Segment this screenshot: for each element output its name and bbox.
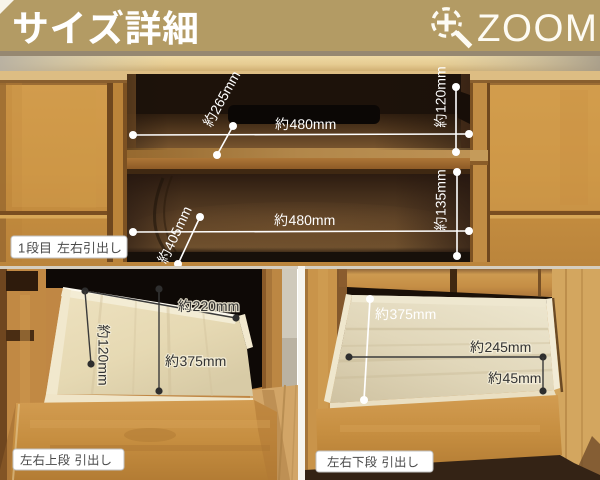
svg-text:120mm: 120mm (432, 66, 448, 113)
svg-text:480mm: 480mm (289, 212, 336, 228)
svg-text:375mm: 375mm (390, 306, 437, 322)
svg-text:120mm: 120mm (96, 339, 112, 386)
svg-text:1: 1 (18, 241, 25, 256)
svg-text:245mm: 245mm (485, 339, 532, 355)
svg-text:ZOOM: ZOOM (477, 7, 598, 50)
svg-text:135mm: 135mm (432, 169, 448, 216)
svg-text:45mm: 45mm (503, 370, 542, 386)
svg-text:375mm: 375mm (180, 353, 227, 369)
svg-text:480mm: 480mm (290, 116, 337, 132)
svg-text:220mm: 220mm (193, 298, 240, 314)
